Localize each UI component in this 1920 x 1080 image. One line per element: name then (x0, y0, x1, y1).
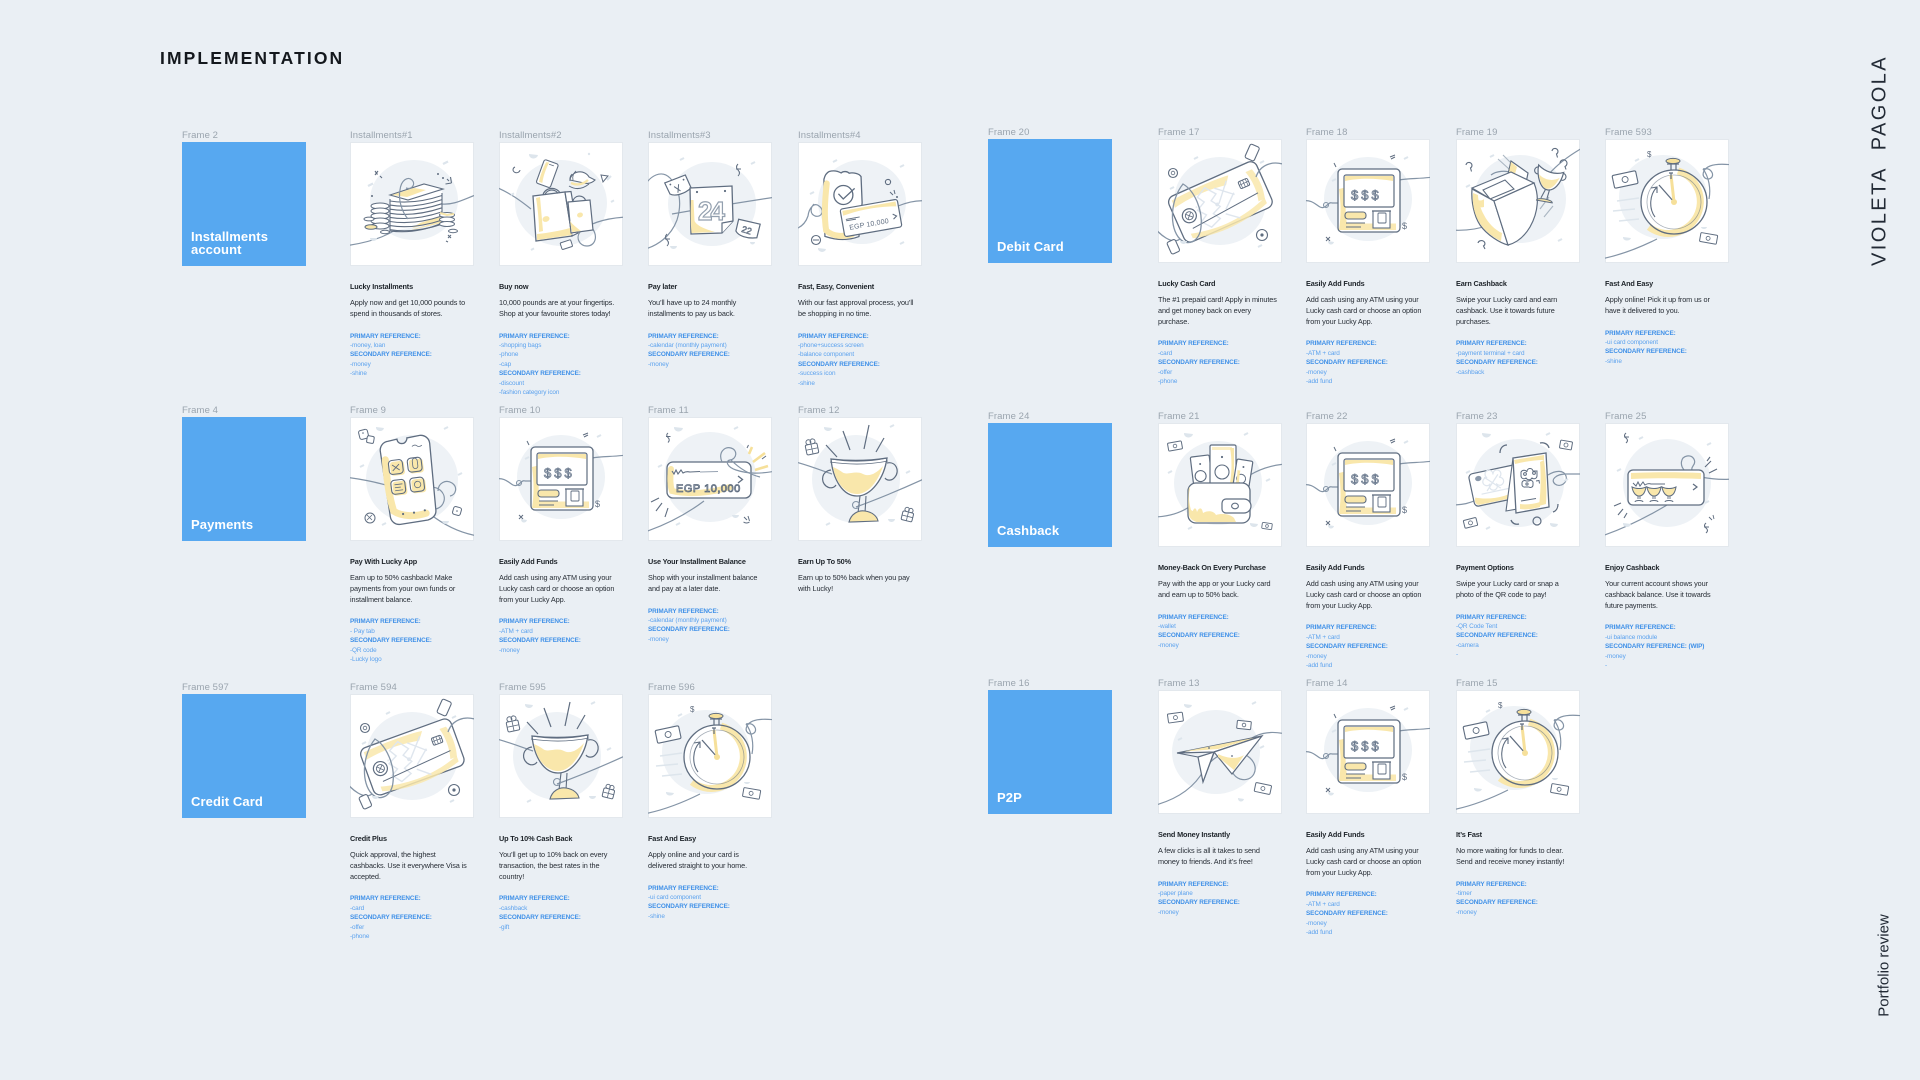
svg-text:24: 24 (698, 196, 725, 226)
svg-text:$: $ (1647, 150, 1652, 159)
svg-text:$$$: $$$ (1351, 739, 1382, 754)
svg-text:EGP 10,000: EGP 10,000 (676, 483, 741, 495)
svg-text:$$$: $$$ (1351, 472, 1382, 487)
svg-text:$$$: $$$ (1351, 188, 1382, 203)
svg-text:$: $ (1402, 772, 1407, 782)
svg-text:$: $ (1498, 701, 1503, 710)
svg-text:$: $ (1402, 505, 1407, 515)
svg-text:$: $ (595, 499, 600, 509)
svg-text:$: $ (690, 705, 695, 714)
svg-text:$$$: $$$ (544, 466, 575, 481)
svg-text:$: $ (1402, 221, 1407, 231)
